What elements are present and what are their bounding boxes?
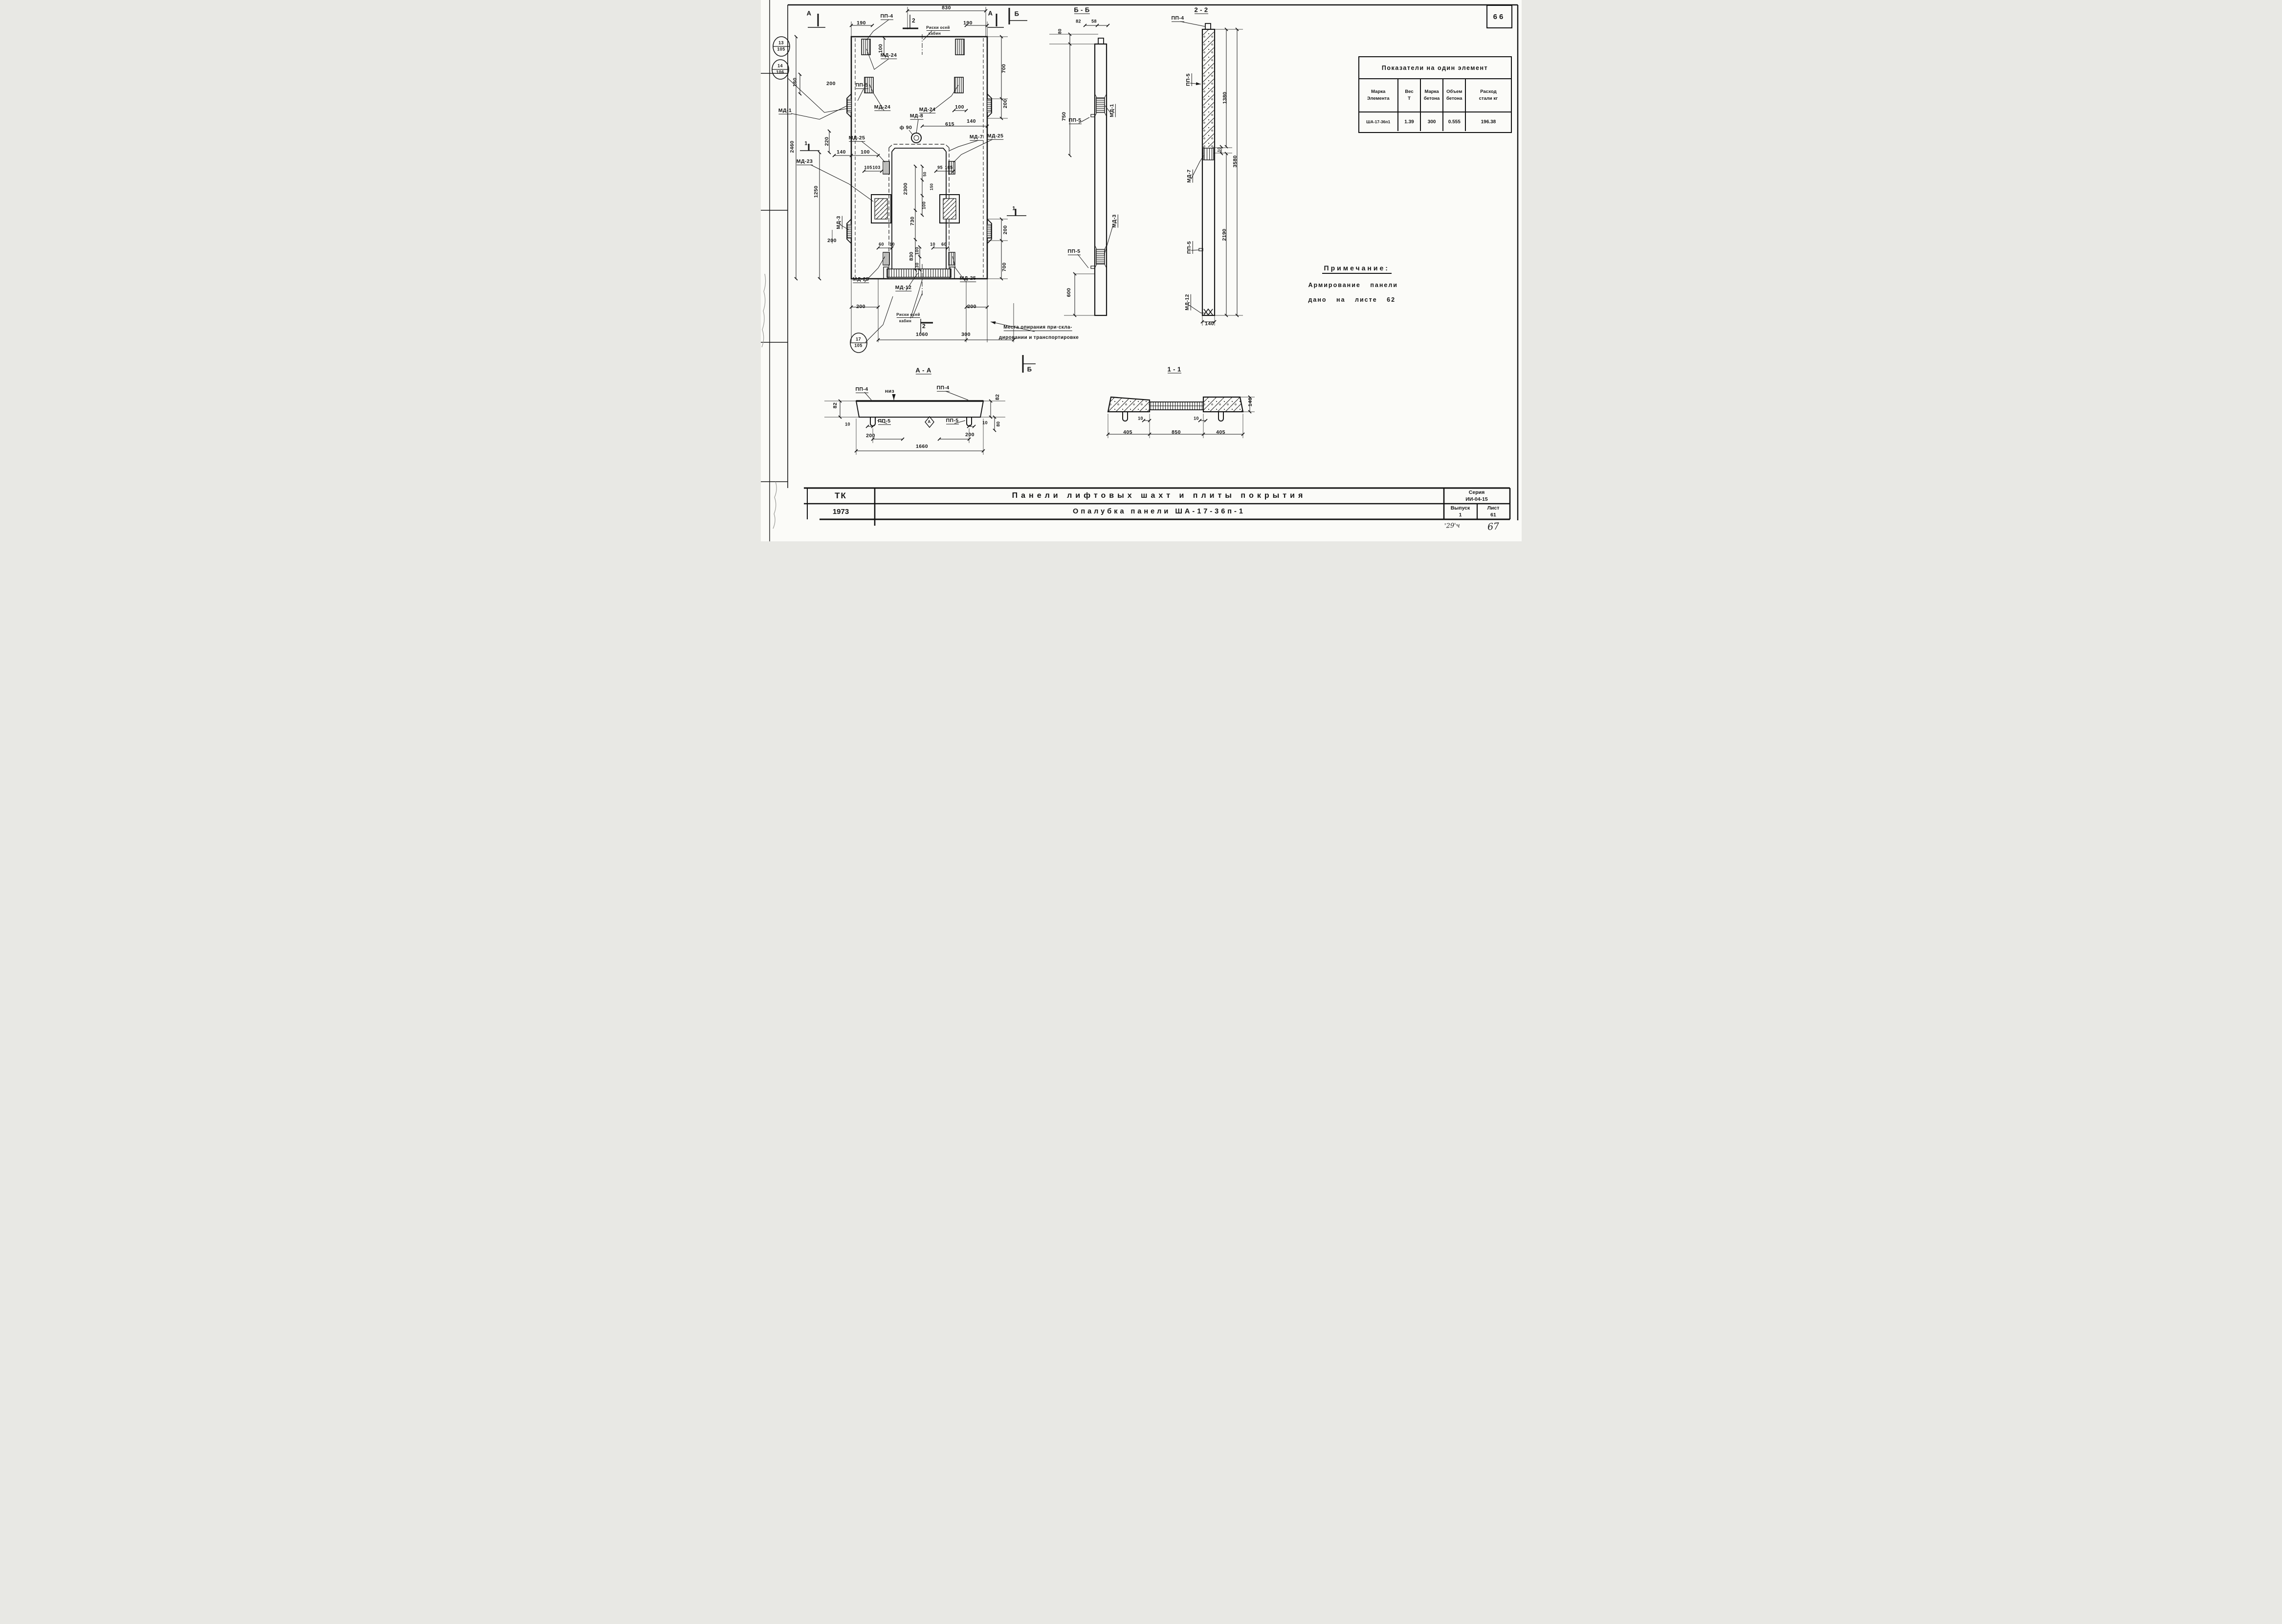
dim-200-left-lower: 200 xyxy=(827,238,837,244)
bubble-105c: 105 xyxy=(854,344,862,348)
dim-82-bb: 82 xyxy=(1076,20,1081,24)
note-line-2: дано на листе 62 xyxy=(1308,296,1470,303)
dim-82-aa-right: 82 xyxy=(995,394,1000,400)
sec-aa-title: А - А xyxy=(915,367,931,375)
dim-730: 730 xyxy=(909,217,915,226)
dim-1060: 1060 xyxy=(916,332,928,337)
plan-dimensions xyxy=(796,7,1014,342)
dim-100-right-plate: 100 xyxy=(955,105,964,110)
text-supports-2: дировании и транспортировке xyxy=(999,335,1079,340)
spec-header-volume: Объем бетона xyxy=(1443,79,1465,112)
dim-140-mid-left: 140 xyxy=(837,150,846,155)
dim-10-22: 10 xyxy=(1217,147,1221,153)
marker-a-topright: А xyxy=(988,10,993,17)
titleblock-issue-cell: Выпуск 1 xyxy=(1444,504,1477,519)
dim-200-left: 200 xyxy=(826,81,836,87)
dim-100-mid-left: 100 xyxy=(861,150,870,155)
axis-2-top: 2 xyxy=(912,18,915,23)
dim-130-bot-slot: 130 xyxy=(915,263,919,270)
section-bb xyxy=(1049,25,1113,315)
dim-200-aa-left: 200 xyxy=(866,433,875,439)
part-md25-upper-right: МД-25 xyxy=(987,133,1003,140)
bubble-106: 106 xyxy=(776,70,784,75)
part-pp4-plan: ПП-4 xyxy=(880,14,893,20)
spec-header-grade-line2: бетона xyxy=(1424,95,1440,102)
marker-1-right: 1 xyxy=(1012,206,1016,212)
spec-col-mark: Марка Элемента ША-17-36п1 xyxy=(1359,79,1398,131)
dim-95-right: 95 xyxy=(937,166,943,170)
dim-105-right: 105 xyxy=(945,166,953,170)
dim-80-bb: 80 xyxy=(1058,29,1062,34)
dim-50-slot: 50 xyxy=(923,172,927,177)
spec-value-volume: 0.555 xyxy=(1443,112,1465,131)
spec-table-grid: Марка Элемента ША-17-36п1 Вес Т 1.39 Мар… xyxy=(1359,79,1511,131)
series-label: Серия xyxy=(1469,489,1484,496)
part-md12-plan: МД-12 xyxy=(895,285,911,291)
dim-2190-22: 2190 xyxy=(1221,229,1227,241)
spec-col-weight: Вес Т 1.39 xyxy=(1398,79,1421,131)
note-block: Примечание: Армирование панели дано на л… xyxy=(1308,264,1470,303)
dim-700-right-top: 700 xyxy=(1001,64,1006,73)
spec-table-title: Показатели на один элемент xyxy=(1359,57,1511,79)
spec-header-weight: Вес Т xyxy=(1398,79,1420,112)
marker-1-left: 1 xyxy=(804,141,808,147)
dim-140-11: 140 xyxy=(1247,398,1253,407)
part-pp5-aa-left: ПП-5 xyxy=(878,419,890,425)
part-pp5-22-bot: ПП-5 xyxy=(1186,241,1193,254)
dim-830-slot: 830 xyxy=(908,252,914,261)
dim-100-bot-slot: 100 xyxy=(915,247,919,255)
dim-100-slot: 100 xyxy=(922,201,926,209)
dim-600-bb: 600 xyxy=(1066,288,1071,297)
spec-header-mark: Марка Элемента xyxy=(1359,79,1397,112)
part-md23: МД-23 xyxy=(797,159,813,165)
part-md3-bb: МД-3 xyxy=(1111,214,1118,227)
sec-22-title: 2 - 2 xyxy=(1194,7,1208,14)
part-pp4-22: ПП-4 xyxy=(1171,16,1184,22)
dim-830-top: 830 xyxy=(942,5,951,11)
spec-header-grade-line1: Марка xyxy=(1425,89,1439,95)
titleblock-main-title: Панели лифтовых шахт и плиты покрытия xyxy=(875,488,1444,504)
spec-header-grade: Марка бетона xyxy=(1421,79,1442,112)
part-md25-lower-left: МД-25 xyxy=(853,277,869,283)
dim-10-br: 10 xyxy=(930,243,935,247)
spec-value-weight: 1.39 xyxy=(1398,112,1420,131)
dim-82-aa-left: 82 xyxy=(832,402,838,408)
dim-190-right: 190 xyxy=(963,21,973,26)
dim-2300: 2300 xyxy=(903,183,908,195)
dim-10-11-left: 10 xyxy=(1138,417,1143,421)
spec-header-weight-line2: Т xyxy=(1408,95,1411,102)
part-md1-plan: МД-1 xyxy=(778,108,792,114)
dim-60-br: 60 xyxy=(941,243,947,247)
stamp-code: ТК xyxy=(807,488,875,504)
part-md7-22: МД-7 xyxy=(1186,169,1193,182)
dim-160-left: 160 xyxy=(792,78,798,87)
marker-b-top: Б xyxy=(1015,11,1019,17)
issue-label: Выпуск xyxy=(1451,505,1470,512)
spec-col-grade: Марка бетона 300 xyxy=(1421,79,1443,131)
marker-2-bottom: 2 xyxy=(922,323,926,329)
part-md24-mid-left: МД-24 xyxy=(874,105,890,111)
part-md25-upper-left: МД-25 xyxy=(849,135,865,142)
bubble-14: 14 xyxy=(777,64,783,68)
dim-3580-22: 3580 xyxy=(1232,156,1238,168)
dim-10-aa-left: 10 xyxy=(845,423,850,427)
spec-header-steel-line2: стали кг xyxy=(1479,95,1498,102)
dim-2460: 2460 xyxy=(789,141,795,153)
dim-200-right-lower: 200 xyxy=(1002,225,1008,235)
drawing-sheet: 66 Показатели на один элемент Марка Элем… xyxy=(761,0,1522,541)
dim-140-right-plate: 140 xyxy=(967,119,976,124)
text-niz: низ xyxy=(885,389,894,394)
part-md24-top: МД-24 xyxy=(881,53,897,59)
part-pp5-bb-top: ПП-5 xyxy=(1068,118,1081,124)
dim-200-right-top: 200 xyxy=(1002,99,1008,109)
dim-10-11-right: 10 xyxy=(1194,417,1199,421)
part-md25-lower-right: МД-25 xyxy=(960,276,976,282)
dim-140-22: 140 xyxy=(1205,321,1214,327)
dim-1660: 1660 xyxy=(916,444,928,449)
series-value: ИИ-04-15 xyxy=(1465,496,1487,503)
dim-103-left: 103 xyxy=(872,166,880,170)
text-riski-top-2: кабин xyxy=(929,32,941,36)
dim-220: 220 xyxy=(824,137,829,146)
dim-10-aa-right: 10 xyxy=(982,421,988,425)
dim-105-left: 105 xyxy=(864,166,872,170)
titleblock-series-cell: Серия ИИ-04-15 xyxy=(1444,488,1510,504)
dim-10-bl: 10 xyxy=(889,243,895,247)
spec-value-mark: ША-17-36п1 xyxy=(1359,112,1397,131)
dim-405-11-left: 405 xyxy=(1123,430,1132,435)
dim-700-right-bottom: 700 xyxy=(1001,263,1007,272)
bubble-17: 17 xyxy=(856,337,861,342)
part-md1-bb: МД-1 xyxy=(1109,104,1115,117)
spec-header-steel-line1: Расход xyxy=(1480,89,1496,95)
dim-58-bb: 58 xyxy=(1091,20,1097,24)
dim-1380-22: 1380 xyxy=(1222,92,1227,104)
part-md24-mid-right: МД-24 xyxy=(919,107,935,113)
titleblock-subtitle: Опалубка панели ША-17-36п-1 xyxy=(875,504,1444,519)
dim-200-bot-right: 200 xyxy=(967,304,976,310)
spec-value-steel: 196.38 xyxy=(1466,112,1510,131)
text-riski-bot-1: Риски осей xyxy=(896,313,920,318)
spec-col-volume: Объем бетона 0.555 xyxy=(1443,79,1466,131)
spec-header-volume-line1: Объем xyxy=(1446,89,1462,95)
part-md3-plan: МД-3 xyxy=(836,216,842,229)
section-aa xyxy=(824,391,1005,455)
spec-header-weight-line1: Вес xyxy=(1405,89,1413,95)
part-pp5-bb-bot: ПП-5 xyxy=(1067,249,1080,255)
handwritten-mark-left: '29'ч xyxy=(1444,522,1460,530)
spec-header-volume-line2: бетона xyxy=(1446,95,1462,102)
dim-150-slot: 150 xyxy=(930,183,934,191)
spec-header-mark-line2: Элемента xyxy=(1367,95,1390,102)
note-heading: Примечание: xyxy=(1322,264,1392,274)
sheet-label: Лист xyxy=(1487,505,1500,512)
part-pp5-22-top: ПП-5 xyxy=(1185,73,1192,86)
marker-b-bottom: Б xyxy=(1027,366,1032,373)
part-md7-plan: МД-7 xyxy=(970,134,983,141)
part-pp4-aa-left: ПП-4 xyxy=(855,387,868,393)
part-pp4-aa-right: ПП-4 xyxy=(936,385,949,392)
stamp-year: 1973 xyxy=(807,504,875,519)
note-line-1: Армирование панели xyxy=(1308,282,1470,289)
dim-100-topleft: 100 xyxy=(878,44,883,53)
part-md8: МД-8 xyxy=(910,113,923,120)
sec-bb-title: Б - Б xyxy=(1074,7,1089,14)
dim-200-bot-left: 200 xyxy=(856,304,865,310)
text-riski-bot-2: кабин xyxy=(899,319,911,323)
bubble-105a: 105 xyxy=(777,47,785,52)
spec-col-steel: Расход стали кг 196.38 xyxy=(1466,79,1510,131)
sheet-value: 61 xyxy=(1490,512,1496,518)
part-md12-22: МД-12 xyxy=(1184,294,1191,310)
dim-60-bl: 60 xyxy=(879,243,884,247)
text-supports-1: Места опирания при·скла- xyxy=(1003,325,1072,331)
dim-190-left: 190 xyxy=(857,21,866,26)
dim-750-bb: 750 xyxy=(1061,112,1066,121)
dim-300: 300 xyxy=(961,332,971,337)
issue-value: 1 xyxy=(1459,512,1462,518)
text-riski-top-1: Риски осей xyxy=(926,26,950,31)
bubble-13: 13 xyxy=(778,41,784,45)
marker-a-diamond: А xyxy=(928,420,931,424)
spec-value-grade: 300 xyxy=(1421,112,1442,131)
marker-a-topleft: А xyxy=(807,10,812,17)
handwritten-mark-right: 67 xyxy=(1487,521,1500,533)
dim-405-11-right: 405 xyxy=(1216,430,1225,435)
dim-615: 615 xyxy=(945,122,954,127)
sec-11-title: 1 - 1 xyxy=(1167,366,1181,374)
spec-header-mark-line1: Марка xyxy=(1371,89,1385,95)
dim-200-aa-right: 200 xyxy=(965,432,975,438)
dim-f90: ф 90 xyxy=(900,125,912,131)
spec-header-steel: Расход стали кг xyxy=(1466,79,1510,112)
dim-80-aa: 80 xyxy=(996,422,1000,427)
spec-table: Показатели на один элемент Марка Элемент… xyxy=(1358,56,1512,133)
part-pp5-aa-right: ПП-5 xyxy=(946,418,958,424)
dim-850-11: 850 xyxy=(1172,430,1181,435)
titleblock-sheet-cell: Лист 61 xyxy=(1477,504,1510,519)
part-pp5-plan: ПП-5 xyxy=(855,83,868,89)
dim-1250: 1250 xyxy=(813,186,819,198)
page-number-tab: 66 xyxy=(1486,5,1512,28)
